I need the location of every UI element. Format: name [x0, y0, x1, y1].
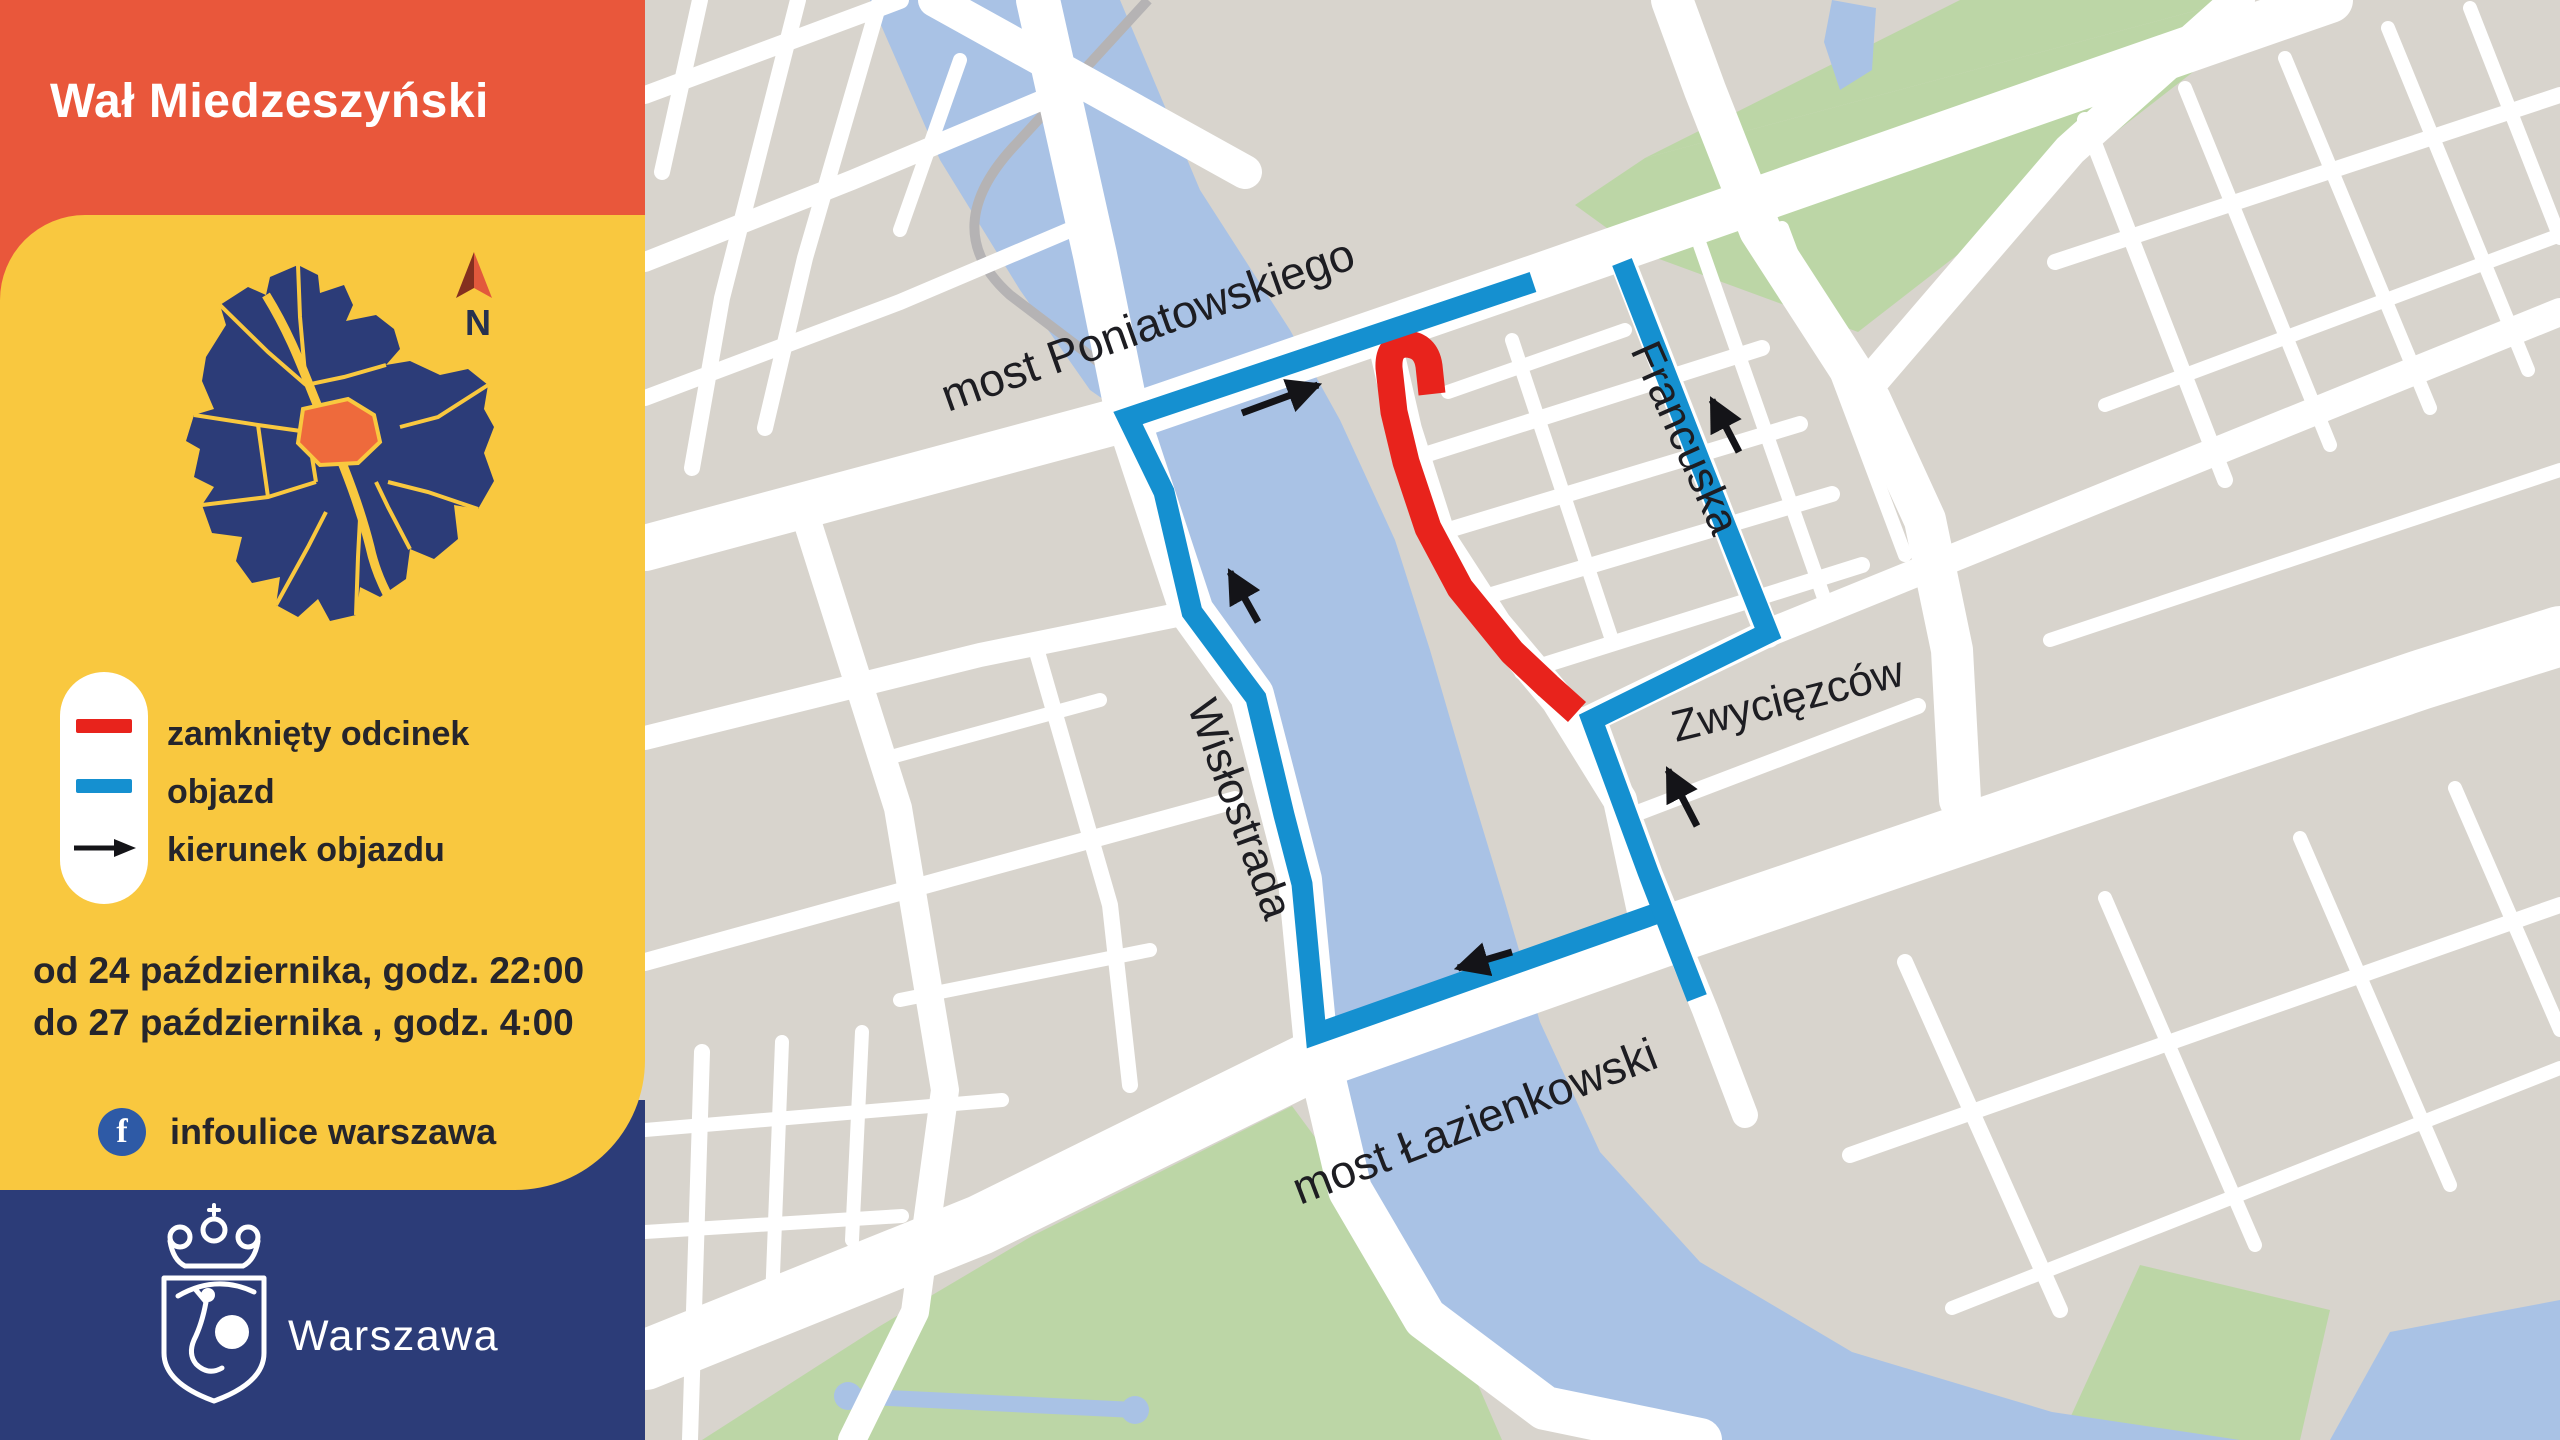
schedule-text: od 24 października, godz. 22:00 do 27 pa…: [33, 945, 584, 1049]
legend-label-detour: objazd: [167, 763, 469, 821]
schedule-start: od 24 października, godz. 22:00: [33, 945, 584, 997]
city-name: Warszawa: [288, 1312, 499, 1361]
highlighted-district: [298, 399, 380, 465]
social-row: f infoulice warszawa: [98, 1108, 496, 1156]
legend-card: [60, 672, 148, 904]
page-title: Wał Miedzeszyński: [50, 74, 610, 129]
legend-label-direction: kierunek objazdu: [167, 821, 469, 879]
compass-label: N: [446, 302, 510, 344]
mermaid-head: [201, 1288, 215, 1302]
closed-section-swatch: [76, 719, 132, 733]
schedule-end: do 27 października , godz. 4:00: [33, 997, 584, 1049]
compass-north-icon: [446, 250, 502, 300]
legend-label-closed-section: zamknięty odcinek: [167, 705, 469, 763]
legend-labels: zamknięty odcinek objazd kierunek objazd…: [167, 705, 469, 879]
social-label: infoulice warszawa: [170, 1111, 496, 1153]
mermaid-shield: [215, 1315, 249, 1349]
direction-arrow-icon: [70, 828, 138, 868]
page-root: most Poniatowskiego Francuska Zwycięzców…: [0, 0, 2560, 1440]
detour-swatch: [76, 779, 132, 793]
facebook-icon: f: [98, 1108, 146, 1156]
warsaw-crest-logo: [158, 1203, 270, 1408]
compass: N: [446, 250, 510, 344]
